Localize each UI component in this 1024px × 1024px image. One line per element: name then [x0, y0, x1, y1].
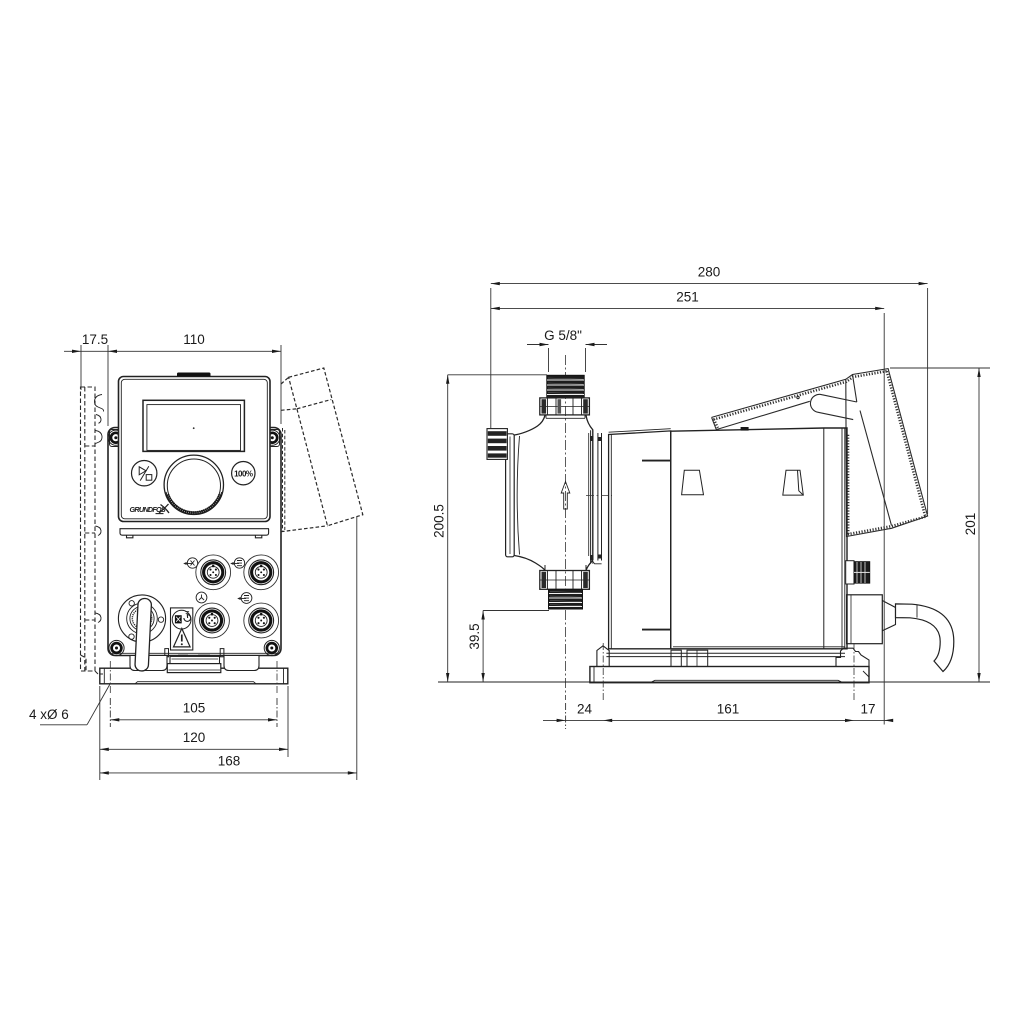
svg-text:24: 24 — [577, 702, 593, 717]
svg-text:201: 201 — [963, 513, 978, 536]
svg-text:168: 168 — [218, 754, 241, 769]
svg-text:17.5: 17.5 — [82, 332, 108, 347]
svg-text:161: 161 — [717, 702, 740, 717]
svg-text:280: 280 — [698, 265, 721, 280]
svg-text:120: 120 — [183, 730, 206, 745]
svg-text:100%: 100% — [234, 469, 253, 478]
svg-text:105: 105 — [183, 701, 206, 716]
svg-text:4 xØ 6: 4 xØ 6 — [29, 707, 69, 722]
svg-text:110: 110 — [183, 332, 205, 347]
svg-text:G 5/8": G 5/8" — [544, 328, 582, 343]
svg-text:200.5: 200.5 — [432, 504, 447, 538]
svg-text:17: 17 — [860, 702, 875, 717]
svg-text:251: 251 — [676, 290, 699, 305]
svg-text:GRUNDFOS: GRUNDFOS — [130, 505, 166, 514]
svg-text:39.5: 39.5 — [467, 623, 482, 649]
